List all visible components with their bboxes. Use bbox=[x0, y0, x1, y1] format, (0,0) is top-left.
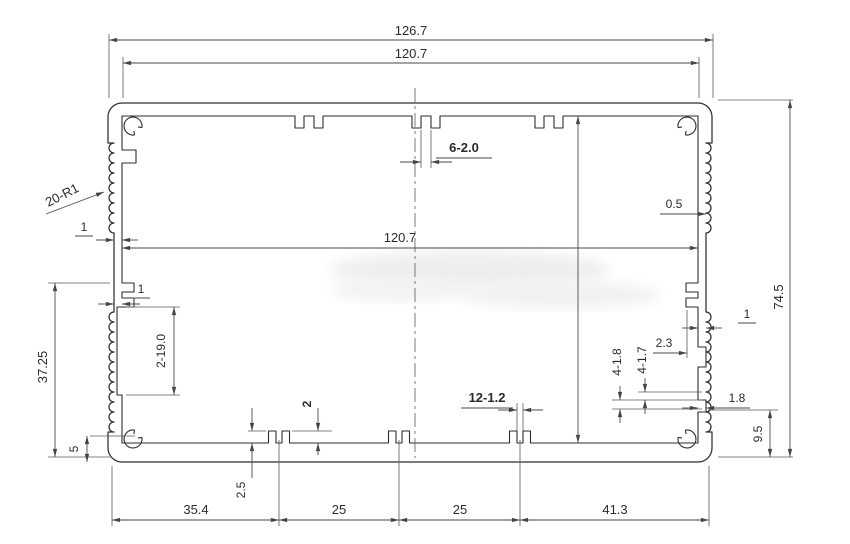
dim-inner-width-top: 120.7 bbox=[123, 46, 699, 98]
dim-bottom-rib: 2.5 bbox=[234, 408, 266, 498]
dim-notches-18: 4-1.8 bbox=[610, 348, 702, 423]
dim-left-height: 37.25 bbox=[35, 283, 110, 457]
dim-flute-offset: 0.5 bbox=[660, 197, 706, 214]
screw-boss-top-right bbox=[678, 117, 696, 135]
dim-chain-41-3-label: 41.3 bbox=[602, 502, 627, 517]
dim-wall-lower-left: 1 bbox=[98, 282, 150, 304]
dim-corner-offset-left-label: 5 bbox=[67, 445, 81, 452]
dim-wall-right-label: 1 bbox=[744, 307, 751, 321]
dim-corner-radius-label: 20-R1 bbox=[43, 180, 81, 209]
profile-drawing-canvas: 126.7 120.7 6-2.0 20-R1 1 120.7 0.5 bbox=[0, 0, 850, 544]
technical-drawing-page: 126.7 120.7 6-2.0 20-R1 1 120.7 0.5 bbox=[0, 0, 850, 544]
screw-boss-top-left bbox=[124, 117, 142, 135]
dim-inner-width-top-label: 120.7 bbox=[395, 46, 428, 61]
dim-corner-offset-right-label: 9.5 bbox=[751, 425, 765, 442]
dim-side-slot: 2-19.0 bbox=[126, 307, 180, 395]
dim-wall-lower-left-label: 1 bbox=[138, 282, 145, 296]
dim-wall-right: 1 bbox=[682, 307, 756, 328]
dim-boss-gap: 2.3 bbox=[653, 310, 687, 358]
dim-chain-25a-label: 25 bbox=[332, 502, 346, 517]
dim-overall-height-label: 74.5 bbox=[771, 284, 786, 309]
dim-bottom-slots-label: 12-1.2 bbox=[469, 390, 506, 405]
dim-bottom-chain: 35.4 25 25 41.3 bbox=[112, 440, 709, 526]
dim-top-slots-label: 6-2.0 bbox=[449, 140, 479, 155]
dim-corner-offset-left: 5 bbox=[67, 436, 135, 462]
dim-notch-depth-label: 1.8 bbox=[729, 391, 746, 405]
dim-inner-width-mid: 120.7 bbox=[122, 230, 698, 248]
dim-wall-upper-left-label: 1 bbox=[81, 220, 88, 234]
dim-corner-offset-right: 9.5 bbox=[708, 410, 778, 457]
dim-side-slot-label: 2-19.0 bbox=[154, 334, 168, 368]
dim-bottom-slots: 12-1.2 bbox=[461, 390, 543, 431]
dim-top-slots: 6-2.0 bbox=[400, 130, 492, 168]
dim-notches-17-label: 4-1.7 bbox=[635, 346, 649, 374]
screw-boss-bottom-left bbox=[124, 430, 142, 448]
dim-rib-height: 2 bbox=[292, 400, 332, 455]
watermark bbox=[330, 250, 660, 309]
dim-inner-width-mid-label: 120.7 bbox=[384, 230, 417, 245]
dim-rib-height-label: 2 bbox=[300, 400, 314, 407]
dim-boss-gap-label: 2.3 bbox=[656, 336, 673, 350]
dim-corner-radius: 20-R1 bbox=[43, 180, 104, 214]
dim-left-height-label: 37.25 bbox=[35, 351, 50, 384]
screw-boss-bottom-right bbox=[678, 430, 696, 448]
dim-wall-upper-left: 1 bbox=[75, 220, 138, 240]
dim-chain-35-4-label: 35.4 bbox=[183, 502, 208, 517]
dim-notch-depth: 1.8 bbox=[682, 391, 750, 408]
dim-flute-offset-label: 0.5 bbox=[666, 197, 683, 211]
dim-bottom-rib-label: 2.5 bbox=[234, 481, 248, 498]
dim-chain-25b-label: 25 bbox=[453, 502, 467, 517]
dim-notches-18-label: 4-1.8 bbox=[610, 348, 624, 376]
dim-total-width-label: 126.7 bbox=[395, 23, 428, 38]
dim-notches-17: 4-1.7 bbox=[635, 346, 702, 414]
